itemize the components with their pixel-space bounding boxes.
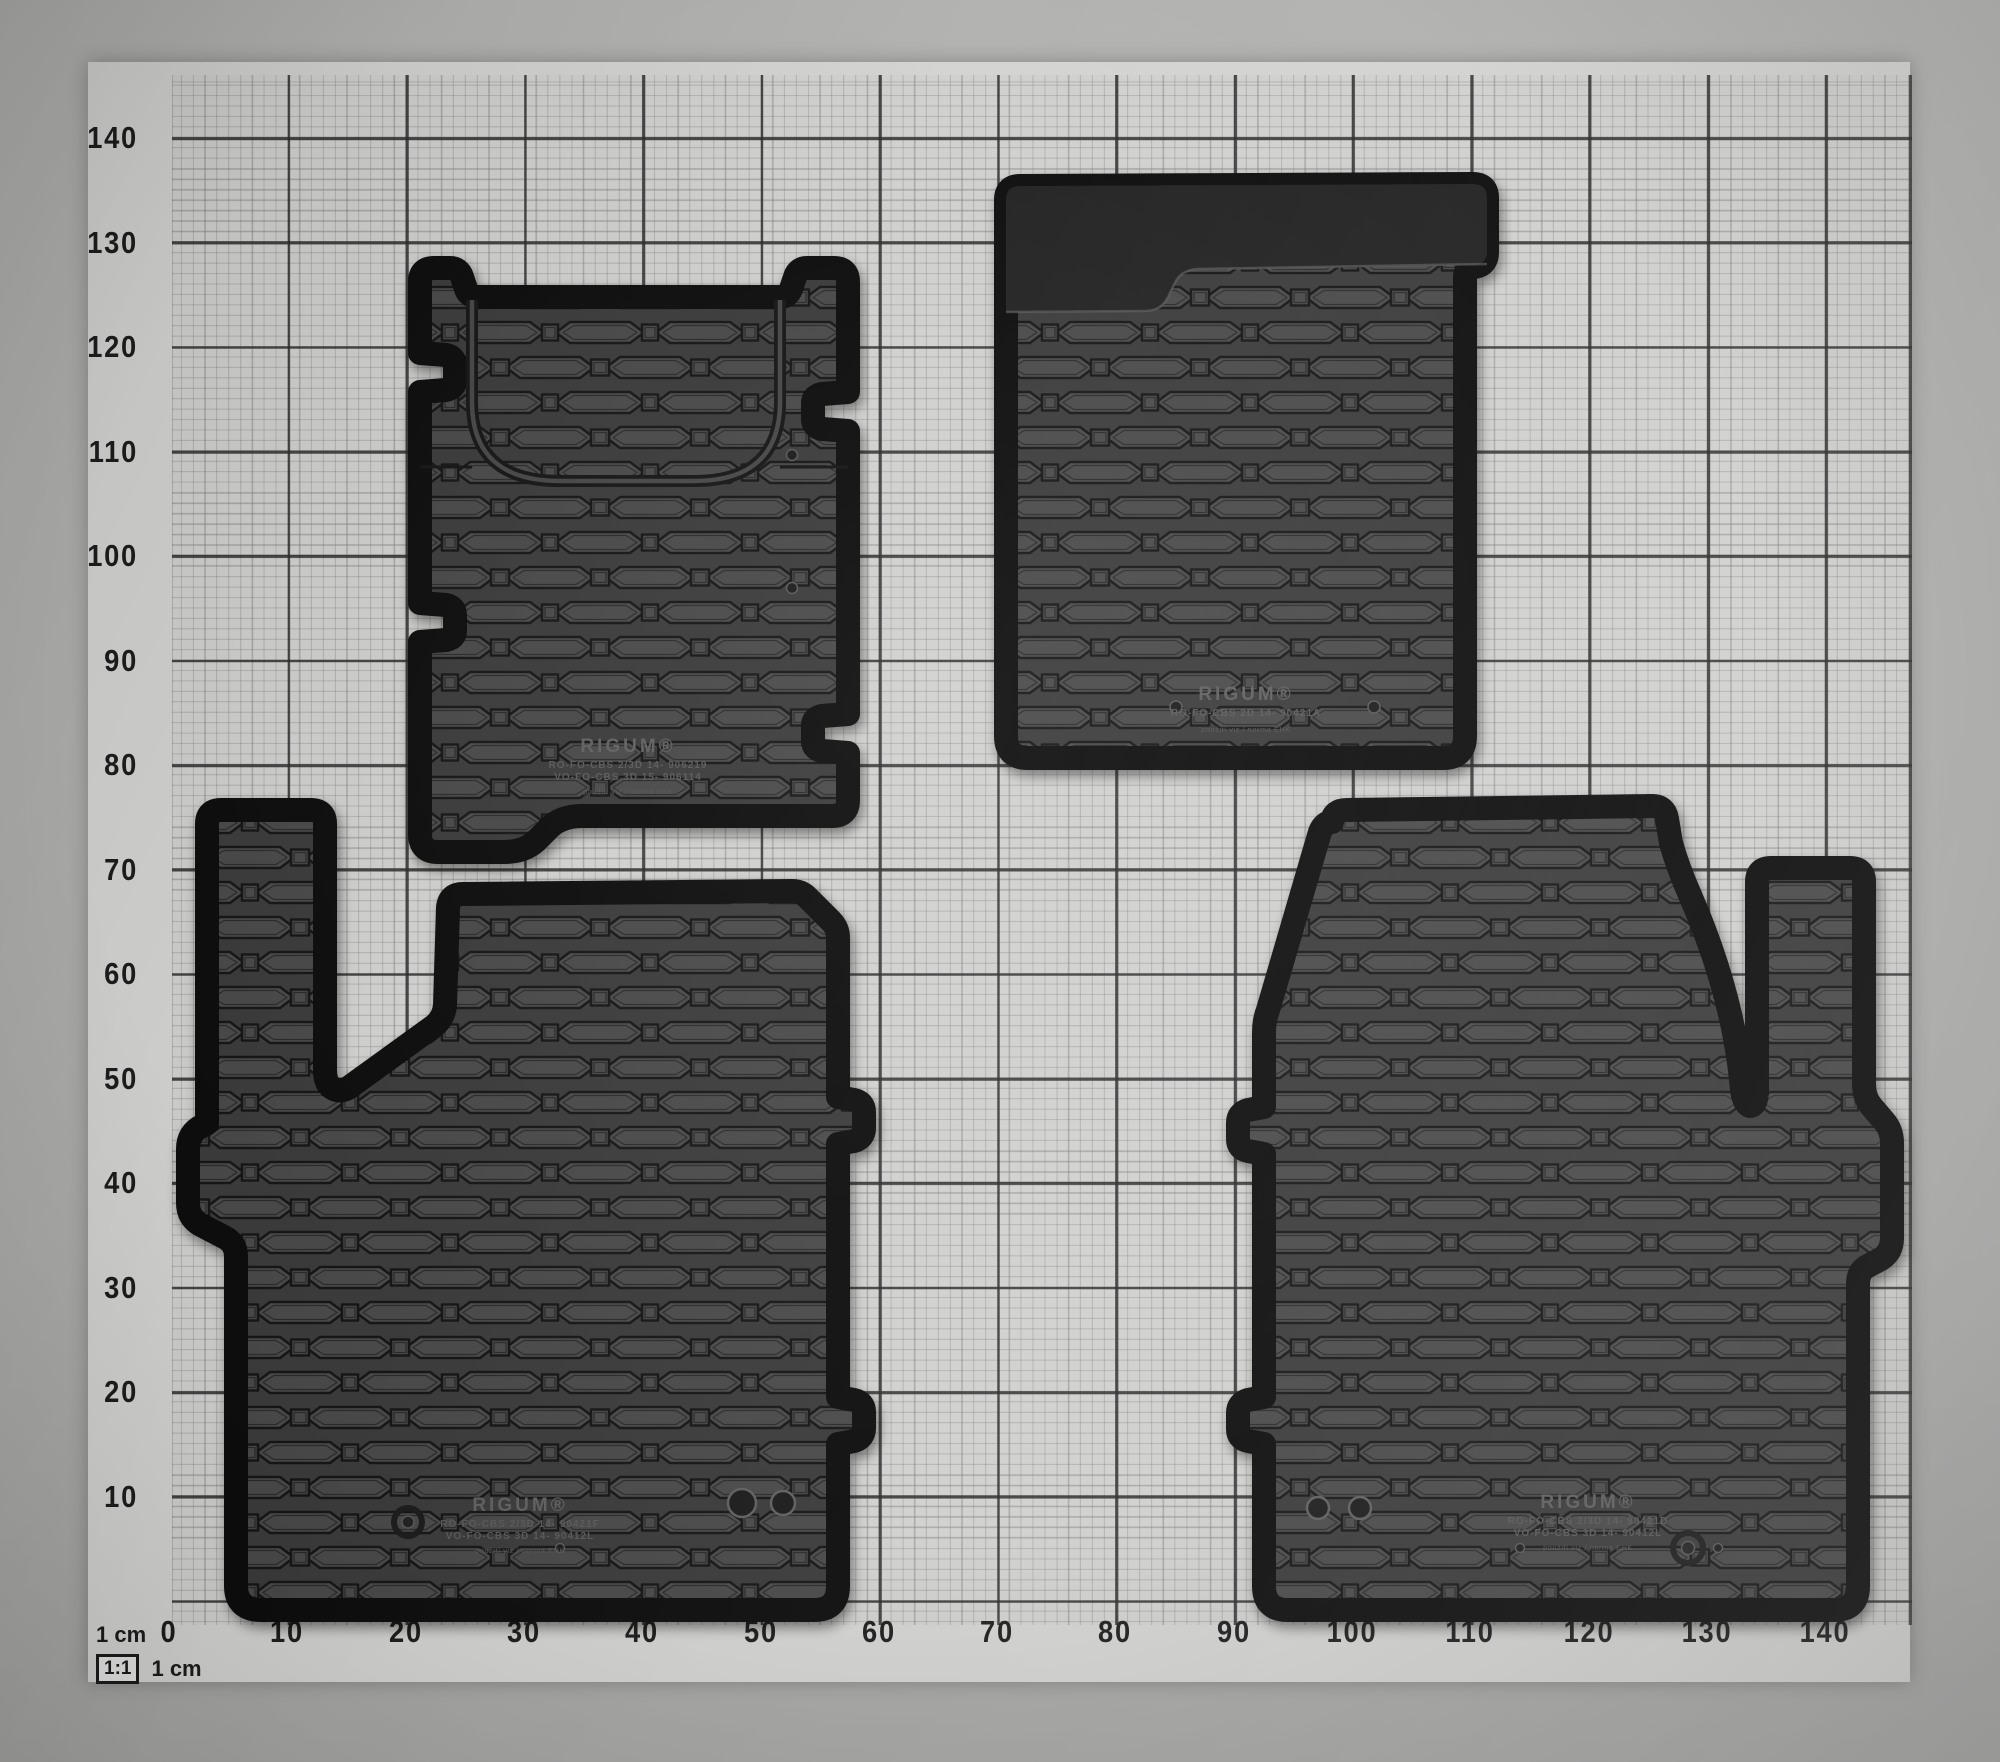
mat-code-text: RO-FO-CBS 2/3D 14- 90421F	[440, 1519, 600, 1530]
mounting-hole	[787, 450, 798, 461]
mat-code-text: VO-FO-CBS 3D 14- 90412L	[1514, 1528, 1663, 1539]
floor-mat-rear-right: RIGUM® RO-FO-CBS 2D 14- 90421A použití v…	[1006, 184, 1487, 758]
mounting-hole	[1516, 1544, 1525, 1553]
mounting-hole	[787, 583, 798, 594]
heel-pad-hole	[728, 1489, 756, 1517]
floor-mat-front-driver: RIGUM® RO-FO-CBS 2/3D 14- 90421F VO-FO-C…	[188, 810, 864, 1610]
mounting-hole	[1714, 1544, 1723, 1553]
floor-mat-front-passenger: RIGUM® RO-FO-CBS 2/3D 14- 90421D VO-FO-C…	[1238, 806, 1892, 1610]
fixing-hole	[1307, 1497, 1329, 1519]
mat-note-text: použití viz / norma EHK	[1201, 725, 1291, 734]
mat-code-text: RO-FO-CBS 2/3D 14- 906219	[549, 760, 708, 771]
mat-brand-text: RIGUM®	[580, 736, 675, 757]
mat-outline	[1238, 806, 1892, 1610]
mat-code-text: RO-FO-CBS 2D 14- 90421A	[1171, 708, 1321, 719]
mat-brand-text: RIGUM®	[1540, 1492, 1635, 1513]
mat-brand-text: RIGUM®	[472, 1495, 567, 1516]
photo-stage: 140130120110100908070605040302010 010203…	[0, 0, 2000, 1762]
mat-outline	[188, 810, 864, 1610]
heel-pad-hole	[771, 1491, 795, 1515]
mat-code-text: VO-FO-CBS 3D 14- 90412L	[446, 1531, 595, 1542]
mounting-hole	[1368, 701, 1380, 713]
floor-mats-layer: RIGUM® RO-FO-CBS 2/3D 14- 906219 VO-FO-C…	[0, 0, 2000, 1762]
fixing-hole	[1349, 1497, 1371, 1519]
mat-note-text: použití viz / norma EHK	[1543, 1543, 1633, 1552]
mat-note-text: použití viz / norma EHK	[583, 787, 673, 796]
mat-code-text: VO-FO-CBS 3D 15- 906114	[554, 772, 702, 783]
mat-code-text: RO-FO-CBS 2/3D 14- 90421D	[1508, 1516, 1669, 1527]
fixing-ring-hole-center	[402, 1516, 414, 1528]
fixing-ring-hole-center	[1682, 1542, 1695, 1555]
mat-brand-text: RIGUM®	[1198, 684, 1293, 705]
mat-note-text: použití viz / norma EHK	[475, 1546, 565, 1555]
floor-mat-rear-left: RIGUM® RO-FO-CBS 2/3D 14- 906219 VO-FO-C…	[420, 268, 848, 852]
